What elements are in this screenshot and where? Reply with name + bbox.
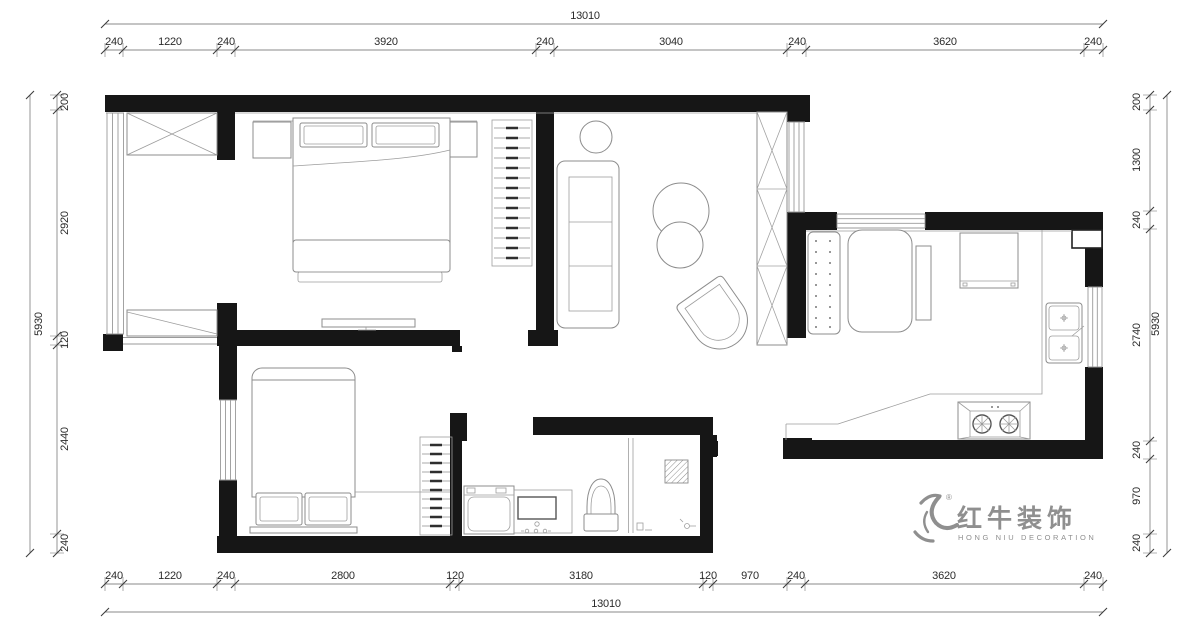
svg-text:1300: 1300 (1131, 148, 1143, 172)
logo: ® 红牛装饰 HONG NIU DECORATION (915, 493, 1096, 542)
living-room (557, 112, 787, 360)
double-bed (293, 118, 450, 282)
headboard (250, 527, 357, 533)
svg-text:3040: 3040 (659, 36, 683, 48)
nightstand-right (447, 122, 477, 157)
svg-text:3180: 3180 (569, 570, 593, 582)
svg-text:240: 240 (1131, 441, 1143, 459)
gas-stove (958, 402, 1030, 439)
svg-text:2920: 2920 (59, 211, 71, 235)
dining-bench (916, 246, 931, 320)
svg-text:1220: 1220 (158, 570, 182, 582)
svg-text:2440: 2440 (59, 427, 71, 451)
balcony-cabinet (127, 113, 217, 155)
beam-pier (1072, 230, 1102, 248)
kitchen-east-window (1088, 287, 1102, 367)
shower-drain-grate (665, 460, 688, 483)
svg-text:240: 240 (1131, 534, 1143, 552)
dining-table (848, 230, 912, 332)
svg-text:240: 240 (59, 534, 71, 552)
registered-mark: ® (946, 493, 952, 502)
svg-text:240: 240 (1131, 211, 1143, 229)
dim-bottom-total: 13010 (591, 598, 621, 610)
logo-sub-text: HONG NIU DECORATION (958, 533, 1096, 542)
svg-text:240: 240 (1084, 36, 1102, 48)
svg-text:240: 240 (217, 570, 235, 582)
kitchen-sink (1046, 303, 1084, 363)
dim-top-total: 13010 (570, 10, 600, 22)
dining-bench-cushion (808, 232, 840, 334)
shower-glass-partition (629, 438, 634, 533)
svg-text:120: 120 (699, 570, 717, 582)
bedroom2-window (219, 400, 237, 480)
radiator-bedroom1 (492, 120, 532, 266)
svg-text:120: 120 (446, 570, 464, 582)
svg-text:240: 240 (788, 36, 806, 48)
toilet (584, 479, 618, 531)
floor-drain (637, 523, 652, 530)
kitchen (786, 230, 1084, 440)
shaft-column (757, 112, 787, 345)
svg-text:240: 240 (105, 570, 123, 582)
svg-text:3620: 3620 (933, 36, 957, 48)
dimension-chain-top: 13010 240 1220 240 3920 240 3040 240 362… (101, 10, 1107, 57)
side-table (580, 121, 612, 153)
bed-bench (293, 240, 450, 272)
logo-brand-text: 红牛装饰 (957, 504, 1077, 533)
svg-text:240: 240 (105, 36, 123, 48)
svg-text:240: 240 (1084, 570, 1102, 582)
svg-text:200: 200 (1131, 93, 1143, 111)
armchair (675, 275, 758, 360)
svg-text:970: 970 (1131, 487, 1143, 505)
sofa (557, 161, 619, 328)
svg-text:1220: 1220 (158, 36, 182, 48)
kitchen-north-window (837, 214, 925, 228)
svg-text:120: 120 (59, 331, 71, 349)
dimension-chain-bottom: 240 1220 240 2800 120 3180 120 970 240 3… (101, 570, 1107, 616)
svg-text:200: 200 (59, 93, 71, 111)
dimension-chain-left: 5930 200 2920 120 2440 240 (26, 91, 71, 557)
svg-text:3620: 3620 (932, 570, 956, 582)
tv-bedroom1 (322, 319, 415, 330)
livingroom-east-window (788, 122, 805, 212)
svg-text:240: 240 (787, 570, 805, 582)
floor-plan-drawing: 13010 240 1220 240 3920 240 3040 240 362… (0, 0, 1200, 640)
washing-machine (464, 486, 514, 534)
svg-text:240: 240 (536, 36, 554, 48)
svg-text:2800: 2800 (331, 570, 355, 582)
radiator-bedroom2 (420, 437, 452, 535)
hongniu-bull-icon (915, 495, 957, 541)
single-bed (250, 368, 357, 533)
balcony-counter (127, 310, 217, 336)
bathroom (464, 438, 696, 534)
dim-right-total: 5930 (1150, 312, 1162, 336)
balcony (127, 113, 217, 336)
dimension-chain-right: 200 1300 240 2740 240 970 240 5930 (1131, 91, 1171, 557)
svg-text:970: 970 (741, 570, 759, 582)
svg-text:2740: 2740 (1131, 323, 1143, 347)
vanity-sink (514, 490, 572, 533)
nightstand-left (253, 122, 291, 158)
svg-text:240: 240 (217, 36, 235, 48)
svg-text:3920: 3920 (374, 36, 398, 48)
bedroom-2 (250, 368, 452, 535)
faucet-symbol (680, 519, 696, 529)
coffee-table-small (657, 222, 703, 268)
dim-left-total: 5930 (33, 312, 45, 336)
fridge (960, 233, 1018, 288)
floor-plan-canvas: 13010 240 1220 240 3920 240 3040 240 362… (0, 0, 1200, 640)
